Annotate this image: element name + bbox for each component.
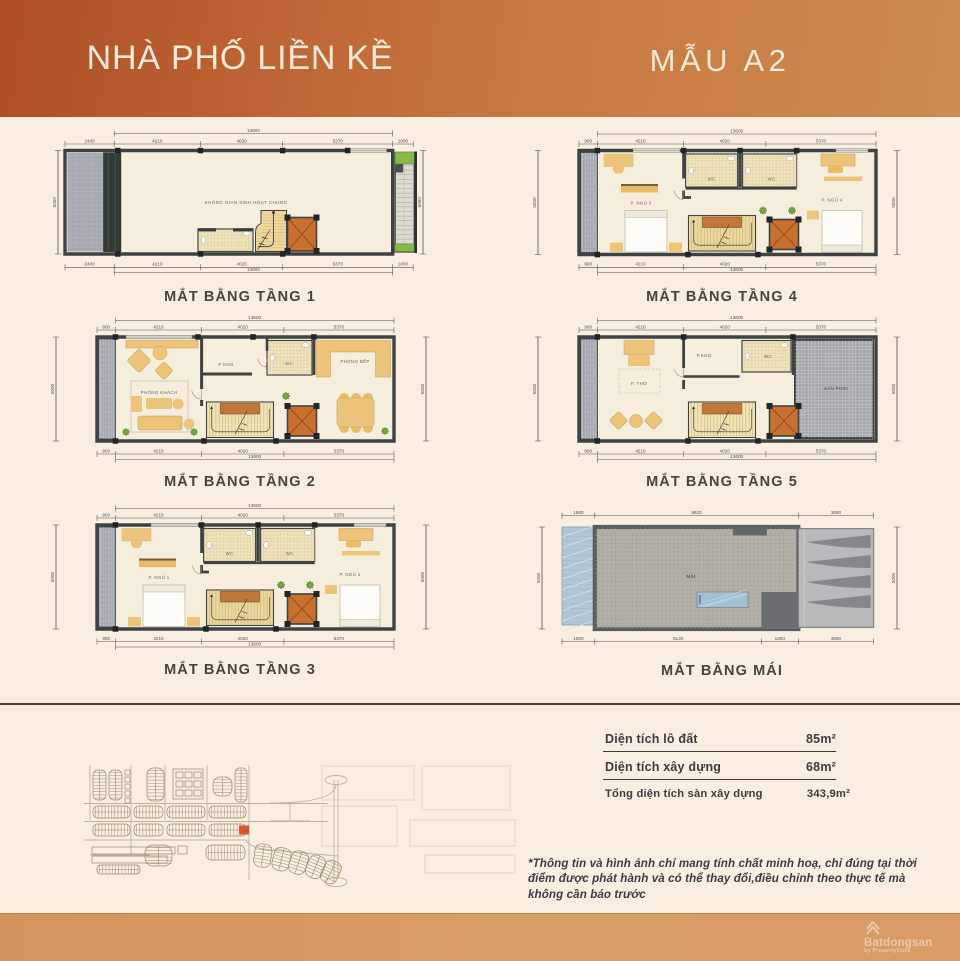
svg-text:P. NGỦ 1: P. NGỦ 1: [148, 575, 169, 580]
svg-text:13600: 13600: [730, 454, 743, 459]
svg-text:1000: 1000: [398, 138, 409, 143]
svg-text:4020: 4020: [238, 512, 249, 517]
svg-text:WC: WC: [226, 551, 234, 556]
svg-text:13600: 13600: [248, 315, 261, 320]
svg-text:3680: 3680: [831, 636, 842, 641]
svg-text:P. NGỦ 2: P. NGỦ 2: [339, 572, 360, 577]
svg-text:13600: 13600: [730, 128, 743, 133]
svg-text:8120: 8120: [673, 636, 684, 641]
svg-text:4210: 4210: [635, 324, 646, 329]
svg-text:P. NGỦ 4: P. NGỦ 4: [821, 198, 842, 203]
svg-text:SÂN PHƠI: SÂN PHƠI: [824, 386, 848, 391]
svg-text:4020: 4020: [236, 262, 247, 267]
svg-text:WC: WC: [768, 177, 776, 182]
svg-text:5370: 5370: [333, 138, 344, 143]
svg-text:4020: 4020: [238, 324, 249, 329]
svg-text:WC: WC: [708, 177, 716, 182]
svg-text:900: 900: [102, 636, 110, 641]
svg-text:13600: 13600: [247, 128, 260, 133]
svg-text:13600: 13600: [730, 267, 743, 272]
svg-text:13600: 13600: [248, 503, 261, 508]
svg-text:4020: 4020: [238, 448, 249, 453]
svg-text:4210: 4210: [152, 138, 163, 143]
svg-text:4210: 4210: [153, 448, 164, 453]
svg-text:900: 900: [584, 448, 592, 453]
svg-text:WC: WC: [285, 361, 293, 366]
svg-text:900: 900: [584, 324, 592, 329]
svg-text:5000: 5000: [891, 383, 896, 394]
svg-text:P. NGỦ 3: P. NGỦ 3: [630, 201, 651, 206]
svg-text:900: 900: [102, 448, 110, 453]
svg-text:9920: 9920: [691, 510, 702, 515]
svg-text:PHÒNG BẾP: PHÒNG BẾP: [340, 359, 369, 364]
svg-text:4210: 4210: [153, 324, 164, 329]
svg-text:1600: 1600: [573, 636, 584, 641]
svg-text:4020: 4020: [720, 262, 731, 267]
svg-text:MÁI: MÁI: [686, 573, 695, 579]
svg-text:5000: 5000: [50, 383, 55, 394]
svg-text:4210: 4210: [635, 262, 646, 267]
svg-text:900: 900: [584, 138, 592, 143]
svg-text:13600: 13600: [248, 641, 261, 646]
svg-text:4210: 4210: [635, 138, 646, 143]
svg-text:5000: 5000: [52, 197, 57, 208]
svg-text:1600: 1600: [573, 510, 584, 515]
svg-text:5000: 5000: [536, 572, 541, 583]
svg-text:5370: 5370: [816, 448, 827, 453]
svg-text:2400: 2400: [84, 138, 95, 143]
svg-text:5370: 5370: [816, 262, 827, 267]
svg-text:KHÔNG GIAN SINH HOẠT CHUNG: KHÔNG GIAN SINH HOẠT CHUNG: [205, 199, 288, 205]
svg-text:P.KHO: P.KHO: [697, 353, 712, 358]
svg-text:1000: 1000: [398, 262, 409, 267]
svg-text:13600: 13600: [730, 315, 743, 320]
svg-text:1800: 1800: [775, 636, 786, 641]
svg-text:4210: 4210: [153, 636, 164, 641]
svg-text:900: 900: [584, 262, 592, 267]
svg-text:900: 900: [102, 512, 110, 517]
svg-text:5370: 5370: [334, 512, 345, 517]
svg-text:13600: 13600: [247, 267, 260, 272]
svg-text:2400: 2400: [84, 262, 95, 267]
svg-text:4210: 4210: [635, 448, 646, 453]
svg-text:4210: 4210: [153, 512, 164, 517]
svg-text:WC: WC: [286, 551, 294, 556]
svg-text:5370: 5370: [816, 138, 827, 143]
svg-text:4210: 4210: [152, 262, 163, 267]
svg-text:5000: 5000: [420, 571, 425, 582]
svg-text:5370: 5370: [816, 324, 827, 329]
svg-text:5370: 5370: [334, 448, 345, 453]
svg-text:5000: 5000: [891, 197, 896, 208]
svg-text:5000: 5000: [532, 383, 537, 394]
svg-text:4020: 4020: [720, 324, 731, 329]
svg-text:4020: 4020: [236, 138, 247, 143]
svg-text:4020: 4020: [720, 138, 731, 143]
svg-text:P. THỜ: P. THỜ: [631, 381, 647, 386]
svg-text:5370: 5370: [334, 324, 345, 329]
svg-text:PHÒNG KHÁCH: PHÒNG KHÁCH: [141, 390, 178, 395]
svg-text:5000: 5000: [420, 383, 425, 394]
svg-text:13600: 13600: [248, 454, 261, 459]
svg-text:900: 900: [102, 324, 110, 329]
svg-text:5000: 5000: [417, 197, 422, 208]
svg-text:WC: WC: [764, 354, 772, 359]
svg-text:5370: 5370: [334, 636, 345, 641]
svg-text:5370: 5370: [333, 262, 344, 267]
svg-text:5000: 5000: [891, 572, 896, 583]
svg-text:4020: 4020: [720, 448, 731, 453]
svg-text:P KHO: P KHO: [218, 362, 234, 367]
svg-text:4020: 4020: [238, 636, 249, 641]
svg-text:3680: 3680: [831, 510, 842, 515]
svg-text:5000: 5000: [532, 197, 537, 208]
svg-text:5000: 5000: [50, 571, 55, 582]
